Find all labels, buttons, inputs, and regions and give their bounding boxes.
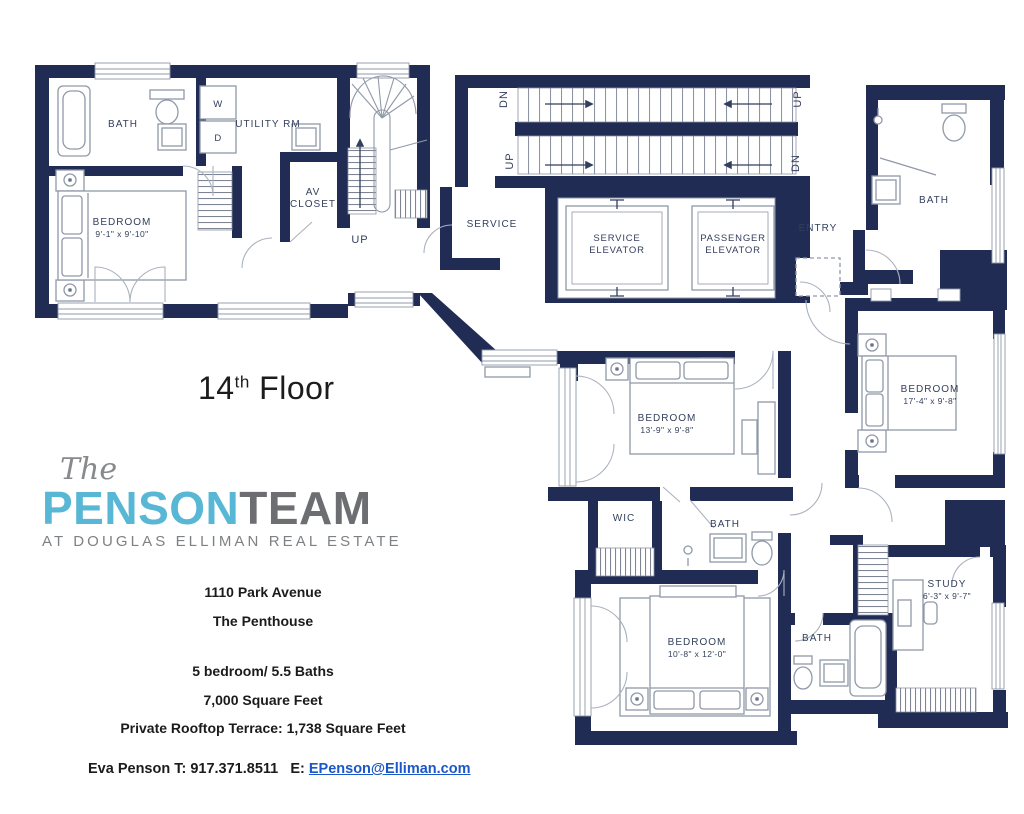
room-dims-study: 6'-3" x 9'-7": [923, 591, 971, 601]
dresser-south: [660, 586, 736, 597]
console-table: [485, 367, 530, 377]
room-dims-bedroom-s: 10'-8" x 12'-0": [668, 649, 726, 659]
listing-address: 1110 Park Avenue: [58, 584, 468, 600]
listing-details: 1110 Park Avenue The Penthouse 5 bedroom…: [58, 584, 468, 736]
listing-terrace: Private Rooftop Terrace: 1,738 Square Fe…: [58, 720, 468, 736]
toilet-nw-tank: [150, 90, 184, 99]
room-label-bedroom-mid: BEDROOM: [638, 413, 697, 424]
toilet-mid-bowl: [752, 541, 772, 565]
room-label-bath-nw: BATH: [108, 119, 138, 130]
contact-line: Eva Penson T: 917.371.8511 E: EPenson@El…: [88, 761, 470, 777]
contact-name-phone: Eva Penson T: 917.371.8511: [88, 761, 278, 777]
room-label-passenger-elevator-2: ELEVATOR: [705, 245, 761, 256]
toilet-s-bowl: [794, 667, 812, 689]
room-label-service: SERVICE: [467, 219, 518, 230]
listing-sqft: 7,000 Square Feet: [58, 692, 468, 708]
monitor-study: [898, 600, 911, 626]
room-label-passenger-elevator-1: PASSENGER: [700, 233, 766, 244]
stair-dn-label-left: DN: [498, 90, 510, 108]
penson-team-logo: The PENSONTEAM AT DOUGLAS ELLIMAN REAL E…: [42, 455, 452, 550]
logo-tagline: AT DOUGLAS ELLIMAN REAL ESTATE: [42, 533, 452, 550]
washer-label: W: [213, 99, 222, 110]
contact-email-link[interactable]: EPenson@Elliman.com: [309, 761, 471, 777]
dryer-label: D: [214, 133, 221, 144]
logo-wordmark: PENSONTEAM: [42, 485, 452, 531]
entry-closet: [796, 258, 840, 296]
stair-up-label-spiral: UP: [351, 234, 368, 246]
flyer-page: BATH UTILITY RM W D AV CLOSET BEDROOM 9'…: [0, 0, 1024, 814]
stair-dn-label-right: DN: [790, 154, 802, 172]
room-label-service-elevator-2: ELEVATOR: [589, 245, 645, 256]
room-label-utility: UTILITY RM: [235, 119, 300, 130]
toilet-ne-bowl: [943, 115, 965, 141]
room-label-av-closet-2: CLOSET: [290, 199, 336, 210]
room-dims-bedroom-nw: 9'-1" x 9'-10": [95, 229, 148, 239]
room-label-bath-mid: BATH: [710, 519, 740, 530]
room-label-study: STUDY: [928, 579, 967, 590]
toilet-s-tank: [794, 656, 812, 664]
floor-word: Floor: [250, 370, 335, 406]
room-label-entry: ENTRY: [799, 223, 838, 234]
room-label-service-elevator-1: SERVICE: [593, 233, 640, 244]
toilet-nw-bowl: [156, 100, 178, 124]
room-label-wic: WIC: [613, 513, 635, 524]
room-label-bath-s: BATH: [802, 633, 832, 644]
floor-number-suffix: th: [235, 372, 250, 391]
stair-up-label-right: UP: [792, 90, 804, 107]
room-dims-bedroom-mid: 13'-9" x 9'-8": [640, 425, 693, 435]
floor-number-label: 14th Floor: [198, 370, 335, 407]
listing-beds-baths: 5 bedroom/ 5.5 Baths: [58, 663, 468, 679]
room-label-av-closet-1: AV: [306, 187, 321, 198]
stair-up-label-left: UP: [504, 152, 516, 169]
shower-head-ne: [874, 116, 882, 124]
room-label-bedroom-s: BEDROOM: [668, 637, 727, 648]
listing-unit: The Penthouse: [58, 613, 468, 629]
logo-team: TEAM: [239, 482, 371, 534]
logo-penson: PENSON: [42, 482, 239, 534]
chair-study: [924, 602, 937, 624]
desk-mid: [742, 420, 757, 454]
logo-the: The: [60, 455, 452, 485]
contact-email-label: E:: [290, 761, 305, 777]
wardrobe-mid: [758, 402, 775, 474]
room-label-bedroom-nw: BEDROOM: [93, 217, 152, 228]
room-label-bath-ne: BATH: [919, 195, 949, 206]
shower-head-mid: [684, 546, 692, 554]
toilet-mid-tank: [752, 532, 772, 540]
room-dims-bedroom-e: 17'-4" x 9'-8": [903, 396, 956, 406]
room-label-bedroom-e: BEDROOM: [901, 384, 960, 395]
bathtub-nw-inner: [63, 91, 85, 149]
toilet-ne-tank: [942, 104, 966, 113]
floor-number: 14: [198, 370, 235, 406]
